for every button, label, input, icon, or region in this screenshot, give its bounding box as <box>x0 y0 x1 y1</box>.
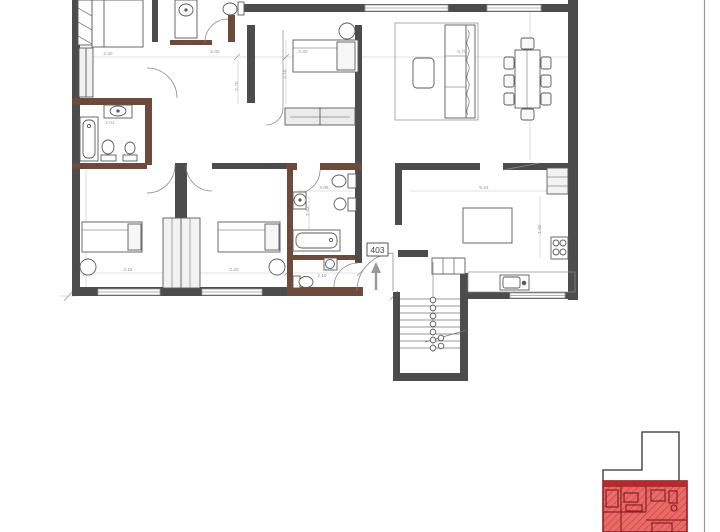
dim-label: 1.60 <box>537 224 542 234</box>
dim-label: 2.01 <box>105 120 115 125</box>
floor-plan-page: 403 2.20 2.00 3.30 5.70 2. <box>0 0 720 532</box>
window-bedroom3 <box>202 289 262 295</box>
bidet-bowl <box>334 198 346 210</box>
toilet-tank <box>101 155 116 161</box>
stove <box>551 237 568 259</box>
bedroom-2 <box>80 222 142 275</box>
chair <box>541 57 551 69</box>
dim-label: 3.20 <box>229 267 239 272</box>
wardrobe-shared <box>163 218 200 288</box>
door-wc-top <box>205 19 228 42</box>
kitchen-island <box>463 208 512 243</box>
stool <box>339 23 355 39</box>
bidet-bowl <box>125 142 135 154</box>
dim-label: 2.93 <box>305 206 310 216</box>
dim-label: 3.08 <box>319 185 329 190</box>
bedroom-3 <box>163 218 285 288</box>
staircase <box>400 262 467 352</box>
dim-label: 2.70 <box>234 81 239 91</box>
coffee-table <box>413 58 434 88</box>
sink-drain <box>117 110 119 112</box>
chair <box>541 75 551 87</box>
sink <box>326 260 335 269</box>
dim-label: 2.00 <box>210 49 220 54</box>
dim-label: 2.20 <box>103 51 113 56</box>
living-room <box>395 23 478 120</box>
burner <box>560 240 566 246</box>
door-bedroom-top <box>266 108 283 125</box>
toilet-bowl <box>332 175 346 187</box>
dim-label: 3.15 <box>123 267 133 272</box>
toilet-tank <box>348 174 356 188</box>
tall-cabinet <box>547 168 568 194</box>
door-bathroom-main <box>297 170 320 193</box>
dim-label: 3.10 <box>282 69 287 79</box>
key-plan <box>603 432 687 532</box>
faucet <box>522 281 526 285</box>
stool <box>80 259 96 275</box>
toilet-bowl <box>102 140 114 154</box>
door-bedroom2 <box>147 165 175 193</box>
sofa <box>445 25 475 118</box>
dim-label: 2.10 <box>317 273 327 278</box>
sink-drain <box>299 199 301 201</box>
window-top-2 <box>487 5 541 11</box>
door-wc-entry <box>334 263 358 287</box>
stair-posts <box>430 297 444 351</box>
unit-label: 403 <box>370 245 384 255</box>
door-master <box>147 68 177 98</box>
chair <box>521 109 534 120</box>
window-bedroom2 <box>98 289 160 295</box>
toilet-tank <box>238 2 244 15</box>
stool <box>269 259 285 275</box>
sink-basin <box>503 277 520 288</box>
dining-table <box>515 50 540 108</box>
window-top-1 <box>365 5 448 11</box>
key-plan-outline <box>603 432 679 481</box>
pillow <box>128 224 141 250</box>
burner <box>560 249 566 255</box>
chair <box>504 75 514 87</box>
pillow <box>337 42 355 70</box>
bidet-tank <box>123 155 137 161</box>
burner <box>553 240 559 246</box>
bidet-tank <box>348 198 356 211</box>
window-kitchen <box>510 293 565 298</box>
chair <box>504 93 514 105</box>
dim-label: 5.70 <box>457 49 467 54</box>
pillows <box>78 0 92 45</box>
pillow <box>265 224 279 250</box>
bathtub-drain <box>87 124 90 127</box>
bathroom-1 <box>80 105 137 161</box>
stair-landing <box>432 258 465 274</box>
chair <box>541 93 551 105</box>
entry-arrow <box>371 262 381 290</box>
bedroom-top <box>283 23 358 125</box>
sink-drain <box>185 9 187 11</box>
bathtub-drain <box>329 238 332 241</box>
dim-label: 3.30 <box>298 49 308 54</box>
dim-label: 5.32 <box>479 185 489 190</box>
door-bedroom3 <box>186 165 212 191</box>
dining-area <box>504 38 551 120</box>
toilet-bowl <box>299 277 313 288</box>
floor-plan-drawing: 403 2.20 2.00 3.30 5.70 2. <box>0 0 720 532</box>
burner <box>553 249 559 255</box>
chair <box>521 38 534 49</box>
double-bed <box>92 0 143 47</box>
chair <box>504 57 514 69</box>
master-bedroom <box>78 0 143 97</box>
toilet-bowl <box>223 3 237 15</box>
